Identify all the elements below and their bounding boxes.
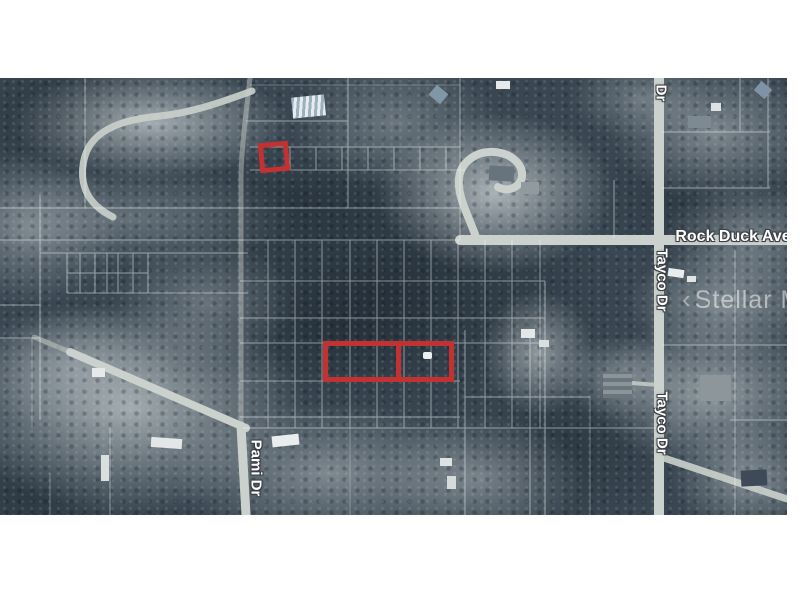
road-pami-dr: [241, 426, 246, 515]
road-north-south-faint: [241, 78, 250, 426]
roads: [34, 78, 787, 515]
road-diagonal-southeast: [658, 456, 787, 499]
white-roof-shed: [496, 81, 510, 89]
stellar-mls-watermark: ‹Stellar MLS: [682, 284, 787, 315]
rubble-2: [447, 476, 456, 489]
mls-listing-photo: Rock Duck Ave Dr Tayco Dr Tayco Dr Pami …: [0, 0, 800, 600]
street-label-pami-dr: Pami Dr: [248, 440, 265, 497]
trailer-1: [151, 437, 183, 449]
street-label-tayco-dr-mid: Tayco Dr: [654, 248, 671, 311]
ridged-roof-building-west-of-tayco: [603, 372, 632, 398]
grid-lines-faint: [32, 85, 590, 515]
house-culdesac-1: [489, 165, 515, 181]
white-blob-west: [92, 368, 105, 377]
driveway: [632, 383, 658, 385]
house-culdesac-2: [521, 182, 539, 194]
road-diagonal-southwest: [70, 352, 246, 428]
street-label-rock-duck-ave: Rock Duck Ave: [675, 228, 787, 246]
shed-northeast: [711, 103, 721, 111]
stellar-chevron-icon: ‹: [682, 284, 692, 314]
street-label-tayco-dr-top-clipped: Dr: [653, 85, 670, 102]
rubble-1: [440, 458, 452, 466]
house-northeast: [688, 116, 711, 128]
highlighted-parcel-pair: [323, 341, 454, 382]
white-strip-structure: [101, 455, 109, 481]
clearing-structure-2: [539, 340, 549, 347]
road-winding-northwest: [83, 91, 252, 217]
aerial-map-image: Rock Duck Ave Dr Tayco Dr Tayco Dr Pami …: [0, 78, 787, 515]
highlighted-parcel-small: [258, 141, 291, 174]
clearing-structure-1: [521, 329, 535, 338]
striped-roof-building: [291, 94, 326, 118]
building-east-of-tayco: [700, 375, 731, 401]
road-diagonal-southwest-ext: [34, 337, 70, 352]
parcel-divider-line: [396, 344, 401, 379]
street-label-tayco-dr-lower: Tayco Dr: [654, 391, 671, 454]
stellar-watermark-text: Stellar MLS: [695, 286, 787, 314]
dark-roof-building-southeast: [741, 469, 768, 486]
white-structure-east-2: [687, 276, 696, 282]
